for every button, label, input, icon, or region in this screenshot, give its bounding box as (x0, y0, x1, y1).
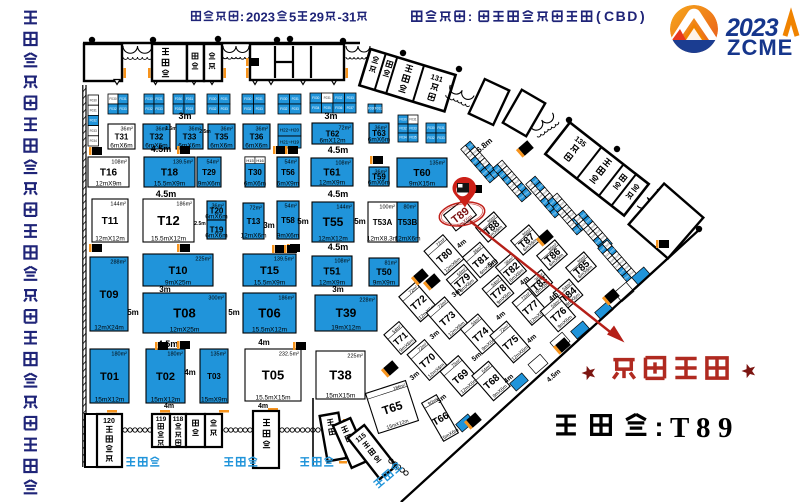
svg-text:F034: F034 (312, 106, 319, 110)
svg-text:4.5m: 4.5m (328, 242, 349, 252)
svg-text:12mX6m: 12mX6m (240, 233, 266, 240)
svg-text:F030: F030 (90, 98, 97, 102)
svg-text:T10: T10 (169, 265, 188, 277)
svg-text:F031: F031 (256, 97, 263, 101)
svg-text:12mX25m: 12mX25m (170, 327, 200, 334)
svg-text:T09: T09 (100, 289, 119, 301)
svg-text:232.5m²: 232.5m² (279, 352, 299, 358)
svg-text:F035: F035 (409, 136, 416, 140)
svg-text:T06: T06 (258, 306, 280, 321)
svg-text:5m: 5m (297, 217, 309, 226)
svg-text:6mX6m: 6mX6m (368, 137, 390, 144)
svg-text:F031: F031 (119, 97, 126, 101)
svg-text:T11: T11 (102, 216, 119, 227)
svg-text:12mX12m: 12mX12m (95, 236, 125, 243)
svg-text:F033: F033 (437, 136, 444, 140)
svg-text:F032: F032 (244, 107, 251, 111)
svg-text:T12: T12 (157, 213, 179, 228)
svg-text:F033: F033 (155, 107, 162, 111)
svg-text:5: 5 (289, 10, 296, 25)
svg-text:8: 8 (696, 412, 711, 444)
svg-text:T30: T30 (248, 168, 262, 177)
svg-text:9mX15m: 9mX15m (409, 181, 435, 188)
svg-text:108m²: 108m² (111, 160, 127, 166)
svg-text:15mX12m: 15mX12m (95, 397, 125, 404)
svg-text:F030: F030 (209, 97, 216, 101)
svg-text:F033: F033 (119, 107, 126, 111)
svg-text:F030: F030 (175, 97, 182, 101)
svg-text:): ) (640, 8, 645, 24)
svg-text:15.5mX12m: 15.5mX12m (151, 236, 186, 243)
svg-text:F031: F031 (375, 107, 382, 111)
svg-text:T15: T15 (260, 265, 279, 277)
svg-text:186m²: 186m² (176, 202, 192, 208)
svg-text:T38: T38 (329, 368, 351, 383)
svg-text:F030: F030 (109, 97, 116, 101)
svg-text:12mX6m: 12mX6m (394, 236, 420, 243)
svg-text:3m: 3m (263, 221, 275, 230)
svg-text:80m²: 80m² (403, 205, 416, 211)
svg-text:-31: -31 (338, 10, 357, 25)
svg-text:T58: T58 (281, 216, 295, 225)
svg-text:F031: F031 (324, 96, 331, 100)
svg-text:9: 9 (718, 412, 733, 444)
svg-text:T35: T35 (215, 132, 229, 141)
svg-text:T03: T03 (207, 372, 221, 381)
svg-text:3m: 3m (159, 285, 171, 294)
svg-text:3m: 3m (324, 111, 337, 121)
svg-text:F031: F031 (437, 126, 444, 130)
svg-text:15.5mX9m: 15.5mX9m (254, 280, 285, 287)
svg-text:15.5mX9m: 15.5mX9m (154, 181, 185, 188)
svg-text:6mX6m: 6mX6m (205, 233, 227, 240)
svg-text:F032: F032 (209, 107, 216, 111)
svg-text:T08: T08 (173, 306, 195, 321)
svg-text:9mX9m: 9mX9m (373, 280, 395, 287)
svg-text:81m²: 81m² (384, 261, 397, 267)
svg-text:T56: T56 (281, 168, 295, 177)
svg-text:180m²: 180m² (167, 352, 183, 358)
svg-text:F033: F033 (221, 107, 228, 111)
svg-text:F033: F033 (90, 129, 97, 133)
svg-text:F030: F030 (399, 118, 406, 122)
svg-text:139.5m²: 139.5m² (274, 257, 294, 263)
svg-text:F033: F033 (256, 107, 263, 111)
svg-text:288m²: 288m² (110, 260, 126, 266)
svg-text:F032: F032 (145, 107, 152, 111)
svg-text:2023: 2023 (246, 10, 275, 25)
svg-text:12mX24m: 12mX24m (94, 325, 124, 332)
svg-text:135m²: 135m² (210, 352, 226, 358)
svg-text:6mX6m: 6mX6m (244, 181, 266, 188)
svg-text:F034: F034 (399, 136, 406, 140)
svg-text:4.5m: 4.5m (151, 144, 172, 154)
svg-text:T16: T16 (100, 168, 118, 179)
svg-text:4m: 4m (258, 338, 270, 347)
svg-text:54m²: 54m² (206, 160, 219, 166)
svg-text:4.5m: 4.5m (328, 189, 349, 199)
svg-text:2.5m: 2.5m (199, 129, 211, 135)
svg-text:T32: T32 (150, 132, 164, 141)
svg-text:135m²: 135m² (429, 161, 445, 167)
svg-text:F033: F033 (347, 96, 354, 100)
svg-text:T31: T31 (115, 132, 129, 141)
svg-text:T60: T60 (413, 168, 431, 179)
svg-text:3m: 3m (178, 111, 191, 121)
svg-text:F031: F031 (186, 97, 193, 101)
svg-text:9mX6m: 9mX6m (277, 233, 299, 240)
svg-text:H21~H19: H21~H19 (280, 140, 300, 145)
svg-text:F030: F030 (427, 126, 434, 130)
svg-text:T50: T50 (376, 267, 392, 277)
svg-text:15mX9m: 15mX9m (201, 397, 227, 404)
svg-text:4m: 4m (258, 403, 268, 410)
svg-text:29: 29 (310, 10, 324, 25)
svg-text:6mX6m: 6mX6m (110, 143, 132, 150)
svg-text:T13: T13 (247, 217, 261, 226)
svg-text:6mX6m: 6mX6m (245, 143, 267, 150)
svg-text:72m²: 72m² (338, 126, 351, 132)
svg-text:F032: F032 (90, 119, 97, 123)
svg-text:F032: F032 (335, 96, 342, 100)
svg-text:15.5mX12m: 15.5mX12m (252, 327, 287, 334)
svg-text:54m²: 54m² (284, 204, 297, 210)
svg-text:T51: T51 (323, 267, 341, 278)
svg-text:F030: F030 (280, 97, 287, 101)
svg-text:225m²: 225m² (195, 257, 211, 263)
svg-text:4.5m: 4.5m (156, 189, 177, 199)
svg-text:19mX12m: 19mX12m (331, 325, 361, 332)
svg-text:F034: F034 (90, 139, 97, 143)
svg-text:T39: T39 (336, 306, 357, 320)
svg-text:F031: F031 (292, 97, 299, 101)
svg-text:6mX6m: 6mX6m (368, 180, 390, 187)
svg-text:F031: F031 (90, 109, 97, 113)
svg-text:T01: T01 (100, 371, 119, 383)
svg-text:4m: 4m (164, 403, 174, 410)
svg-text:72m²: 72m² (249, 206, 262, 212)
svg-text:F032: F032 (399, 127, 406, 131)
svg-text:5m: 5m (228, 308, 240, 317)
svg-text:2.5m: 2.5m (194, 221, 206, 227)
svg-text:15.5mX15m: 15.5mX15m (255, 395, 290, 402)
svg-text:228m²: 228m² (359, 298, 375, 304)
svg-text:5m: 5m (127, 308, 139, 317)
svg-text:T53A: T53A (373, 218, 393, 227)
svg-text:6mX6m: 6mX6m (210, 143, 232, 150)
svg-text:186m²: 186m² (278, 296, 294, 302)
svg-text:15mX15m: 15mX15m (326, 393, 356, 400)
svg-text:F030: F030 (145, 97, 152, 101)
svg-text:F031: F031 (409, 118, 416, 122)
svg-text:F036: F036 (335, 106, 342, 110)
svg-text:12mX9m: 12mX9m (95, 181, 121, 188)
svg-text:118: 118 (173, 416, 184, 423)
svg-text::: : (468, 9, 472, 24)
svg-text:T: T (670, 412, 689, 444)
svg-text:T55: T55 (323, 215, 344, 229)
svg-text:F037: F037 (347, 106, 354, 110)
svg-text:H15: H15 (246, 158, 254, 163)
svg-text:144m²: 144m² (336, 205, 352, 211)
svg-text:CBD: CBD (604, 8, 639, 24)
svg-text:T36: T36 (250, 132, 264, 141)
svg-text:5m: 5m (354, 217, 366, 226)
svg-text:6mX12m: 6mX12m (319, 138, 345, 145)
svg-text:180m²: 180m² (111, 352, 127, 358)
svg-text:F032: F032 (427, 136, 434, 140)
svg-text::: : (655, 412, 664, 442)
svg-text:F035: F035 (324, 106, 331, 110)
svg-text:108m²: 108m² (335, 161, 351, 167)
svg-text:T18: T18 (161, 168, 179, 179)
svg-text:T29: T29 (202, 168, 216, 177)
svg-text:F033: F033 (409, 127, 416, 131)
svg-text:T33: T33 (183, 132, 197, 141)
svg-text:12mX9m: 12mX9m (319, 180, 345, 187)
svg-text:54m²: 54m² (284, 160, 297, 166)
svg-text:F031: F031 (155, 97, 162, 101)
svg-text:4m: 4m (184, 368, 196, 377)
svg-text:F032: F032 (280, 107, 287, 111)
svg-text:F030: F030 (312, 96, 319, 100)
svg-text:108m²: 108m² (334, 259, 350, 265)
svg-text:F032: F032 (109, 107, 116, 111)
svg-text:6mX6m: 6mX6m (205, 214, 227, 221)
svg-text:144m²: 144m² (110, 202, 126, 208)
svg-text:139.5m²: 139.5m² (173, 160, 193, 166)
svg-text:T02: T02 (156, 371, 175, 383)
svg-text:100m²: 100m² (379, 205, 395, 211)
svg-text:ZCME: ZCME (727, 35, 793, 60)
svg-text:F030: F030 (244, 97, 251, 101)
svg-text:T53B: T53B (398, 218, 418, 227)
svg-text:225m²: 225m² (347, 354, 363, 360)
svg-text:F031: F031 (221, 97, 228, 101)
svg-text:H22~H20: H22~H20 (280, 128, 300, 133)
svg-text:H16: H16 (256, 158, 264, 163)
svg-text:T61: T61 (323, 168, 341, 179)
svg-text:6mX9m: 6mX9m (277, 181, 299, 188)
svg-text:9mX6m: 9mX6m (198, 181, 220, 188)
svg-text:3m: 3m (332, 285, 344, 294)
svg-text:T05: T05 (262, 368, 284, 383)
svg-text:300m²: 300m² (208, 296, 224, 302)
svg-text:(: ( (596, 8, 601, 24)
svg-text:120: 120 (103, 418, 115, 425)
svg-text:F033: F033 (292, 107, 299, 111)
svg-text::: : (240, 9, 244, 24)
svg-text:119: 119 (156, 416, 167, 423)
svg-text:1.5m: 1.5m (165, 126, 177, 132)
svg-text:4.5m: 4.5m (328, 145, 349, 155)
